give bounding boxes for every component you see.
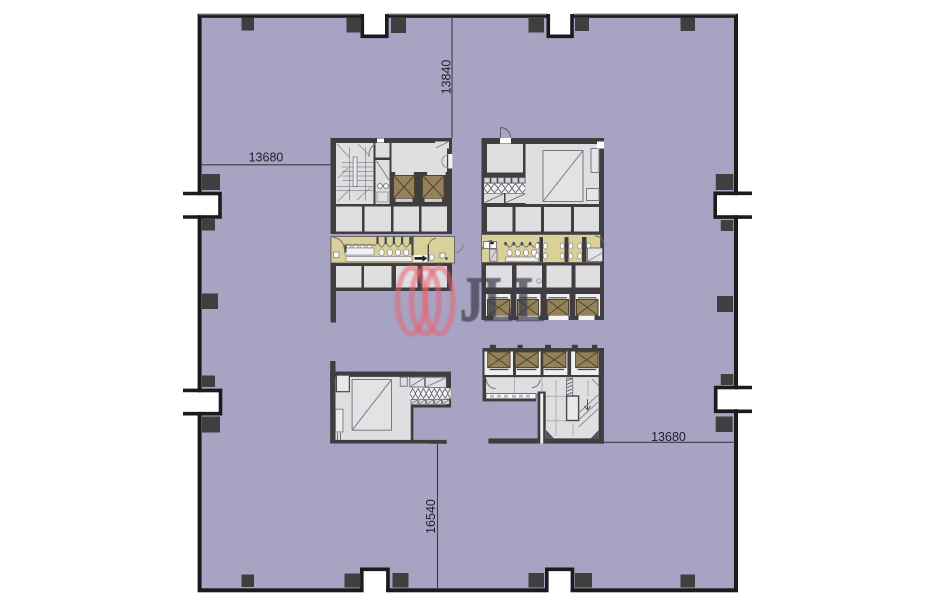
svg-text:13680: 13680 xyxy=(651,430,686,444)
svg-text:13840: 13840 xyxy=(440,60,454,95)
svg-text:JLL: JLL xyxy=(460,264,546,334)
svg-text:16540: 16540 xyxy=(424,499,438,534)
svg-text:13680: 13680 xyxy=(249,151,284,165)
